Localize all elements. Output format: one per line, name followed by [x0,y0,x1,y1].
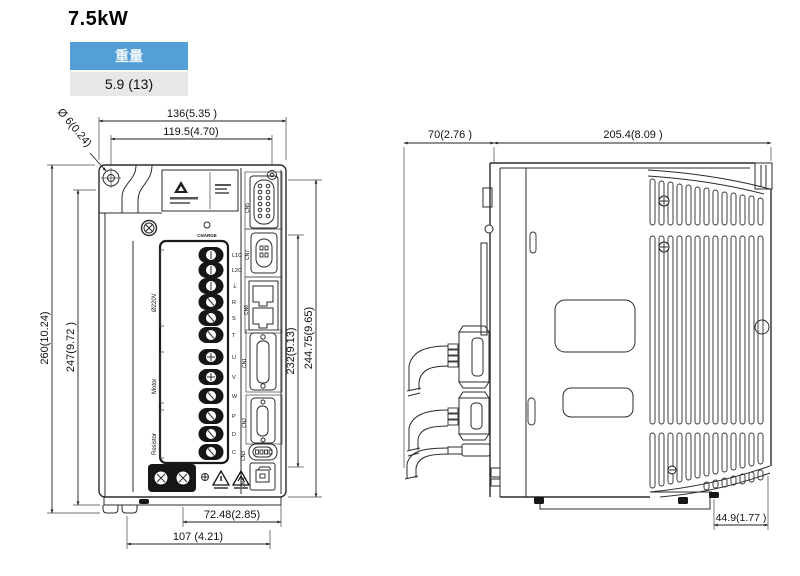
dim-bottom-outer: 107 (4.21) [173,531,223,543]
cn3-label: CN3 [241,451,247,461]
cn3-connector: CN3 [241,444,277,461]
cn7-connector: CN7 [245,229,282,277]
terminal-label: L2C [232,268,242,274]
dim-width-holes: 119.5(4.70) [163,126,218,138]
ear-channel [122,165,136,213]
cover-screw [142,221,157,236]
mounting-hole [101,168,121,188]
side-base [534,492,719,509]
cn2-connector: CN2 [242,395,282,444]
heatsink-screw [659,196,669,206]
terminal-label: C [232,450,236,456]
dim-front-depth: 70(2.76 ) [428,129,472,141]
side-cables [405,326,490,479]
cable-connector [407,392,489,456]
side-hole [755,320,769,334]
dim-height-body: 244.75(9.65) [303,307,315,369]
ground-screw [154,471,168,485]
terminal-label: D [232,432,236,438]
charge-label: CHARGE [197,233,217,238]
power-group-label: Ø220V [152,293,158,312]
ground-symbol-icon [202,474,209,481]
vent-slots-middle [650,236,763,424]
side-window [555,300,635,352]
terminal-label: W [232,394,238,400]
ground-screw [176,471,190,485]
warning-triangle-icon [213,471,229,489]
terminal-label: L1C [232,253,242,259]
dim-bottom-inner: 72.48(2.85) [204,509,260,521]
side-body [481,163,772,497]
terminal-label: V [232,375,236,381]
cn6-label: CN6 [244,305,250,315]
vent-slots-bottom [650,433,763,488]
charge-indicator: CHARGE [197,222,217,238]
terminal-label: S [232,316,236,322]
side-view-drawing: 70(2.76 ) 205.4(8.09 ) 44.9(1.77 ) [404,129,772,530]
cn5-label: CN5 [245,203,251,213]
dimension-drawing: CHARGE [0,0,800,576]
dim-width-outer: 136(5.35 ) [167,108,217,120]
heatsink-screw [659,242,669,252]
side-dimensions: 70(2.76 ) 205.4(8.09 ) 44.9(1.77 ) [404,129,771,530]
cn5-connector: CN5 [245,172,282,229]
terminal-label: U [232,355,236,361]
terminal-label: R [232,300,236,306]
cable-connector [407,326,489,396]
terminal-block: L1C L2C ⏚ R S T U V W P D C [152,241,242,463]
servo-drive-dimension-page: 7.5kW 重量 5.9 (13) [0,0,800,576]
dim-hole-diameter: Ø 6(0.24) [55,106,94,149]
cn2-label: CN2 [242,418,248,428]
cn6-connector: CN6 [244,277,282,333]
front-view-drawing: CHARGE [39,106,322,549]
cn1-label: CN1 [242,358,248,368]
dim-bottom-notch: 44.9(1.77 ) [716,512,767,524]
cn1-connector: CN1 [242,330,282,392]
dim-height-inner: 247(9.72 ) [65,322,77,372]
front-connectors: CN5 CN7 CN6 [241,172,282,490]
terminal-label: ⏚ [232,283,238,290]
heatsink-screw [668,466,676,474]
motor-group-label: Motor [152,379,158,394]
terminal-label: T [232,333,236,339]
side-window [563,388,633,417]
dim-height-terminal: 232(9.13) [285,327,297,374]
resistor-group-label: Resistor [152,433,158,455]
dim-height-outer: 260(10.24) [39,311,51,364]
dim-body-depth: 205.4(8.09 ) [603,129,662,141]
front-bottom-hardware [148,464,249,492]
terminal-label: P [232,414,236,420]
nameplate [162,170,238,211]
cn4-usb-connector: CN4 [241,463,275,490]
cn7-label: CN7 [245,250,251,260]
side-vents [648,170,770,497]
